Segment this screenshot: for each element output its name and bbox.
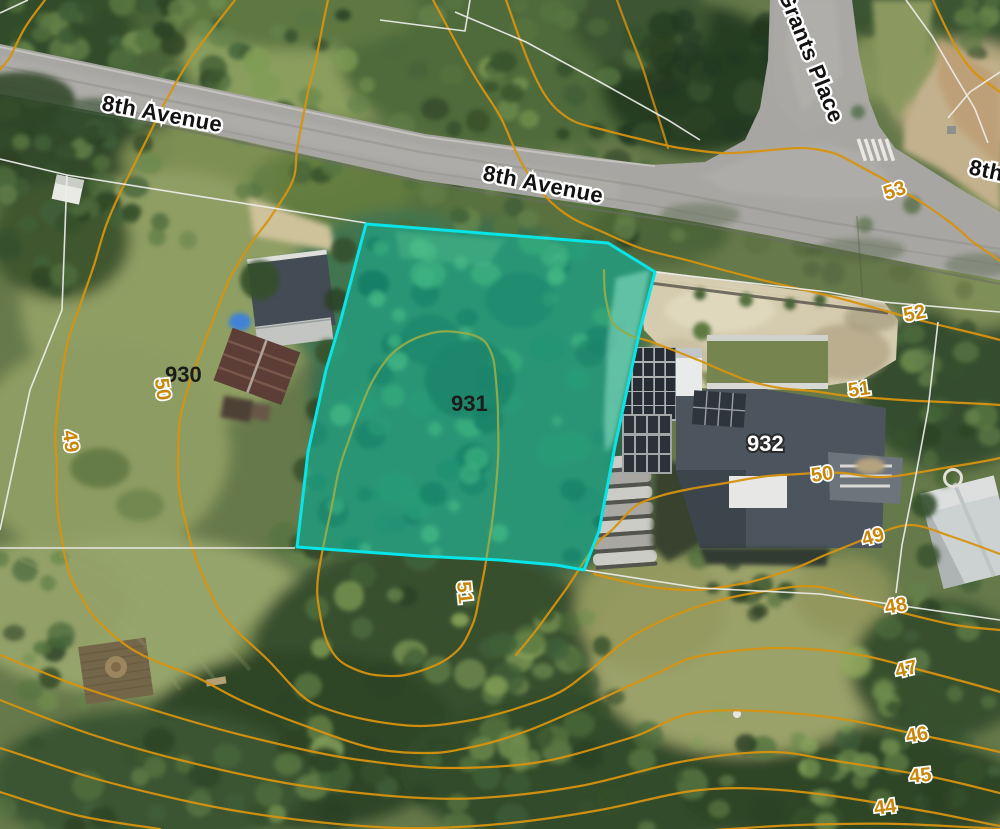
svg-text:931: 931 [451, 391, 488, 416]
svg-text:51: 51 [452, 580, 476, 604]
svg-text:46: 46 [904, 722, 930, 748]
svg-text:48: 48 [883, 593, 909, 619]
svg-text:49: 49 [58, 429, 83, 454]
svg-text:45: 45 [908, 764, 932, 788]
svg-text:44: 44 [873, 795, 899, 820]
svg-text:51: 51 [847, 377, 872, 402]
svg-text:50: 50 [810, 462, 835, 487]
svg-text:50: 50 [150, 377, 175, 402]
svg-text:932: 932 [747, 431, 784, 456]
svg-text:52: 52 [901, 301, 927, 327]
